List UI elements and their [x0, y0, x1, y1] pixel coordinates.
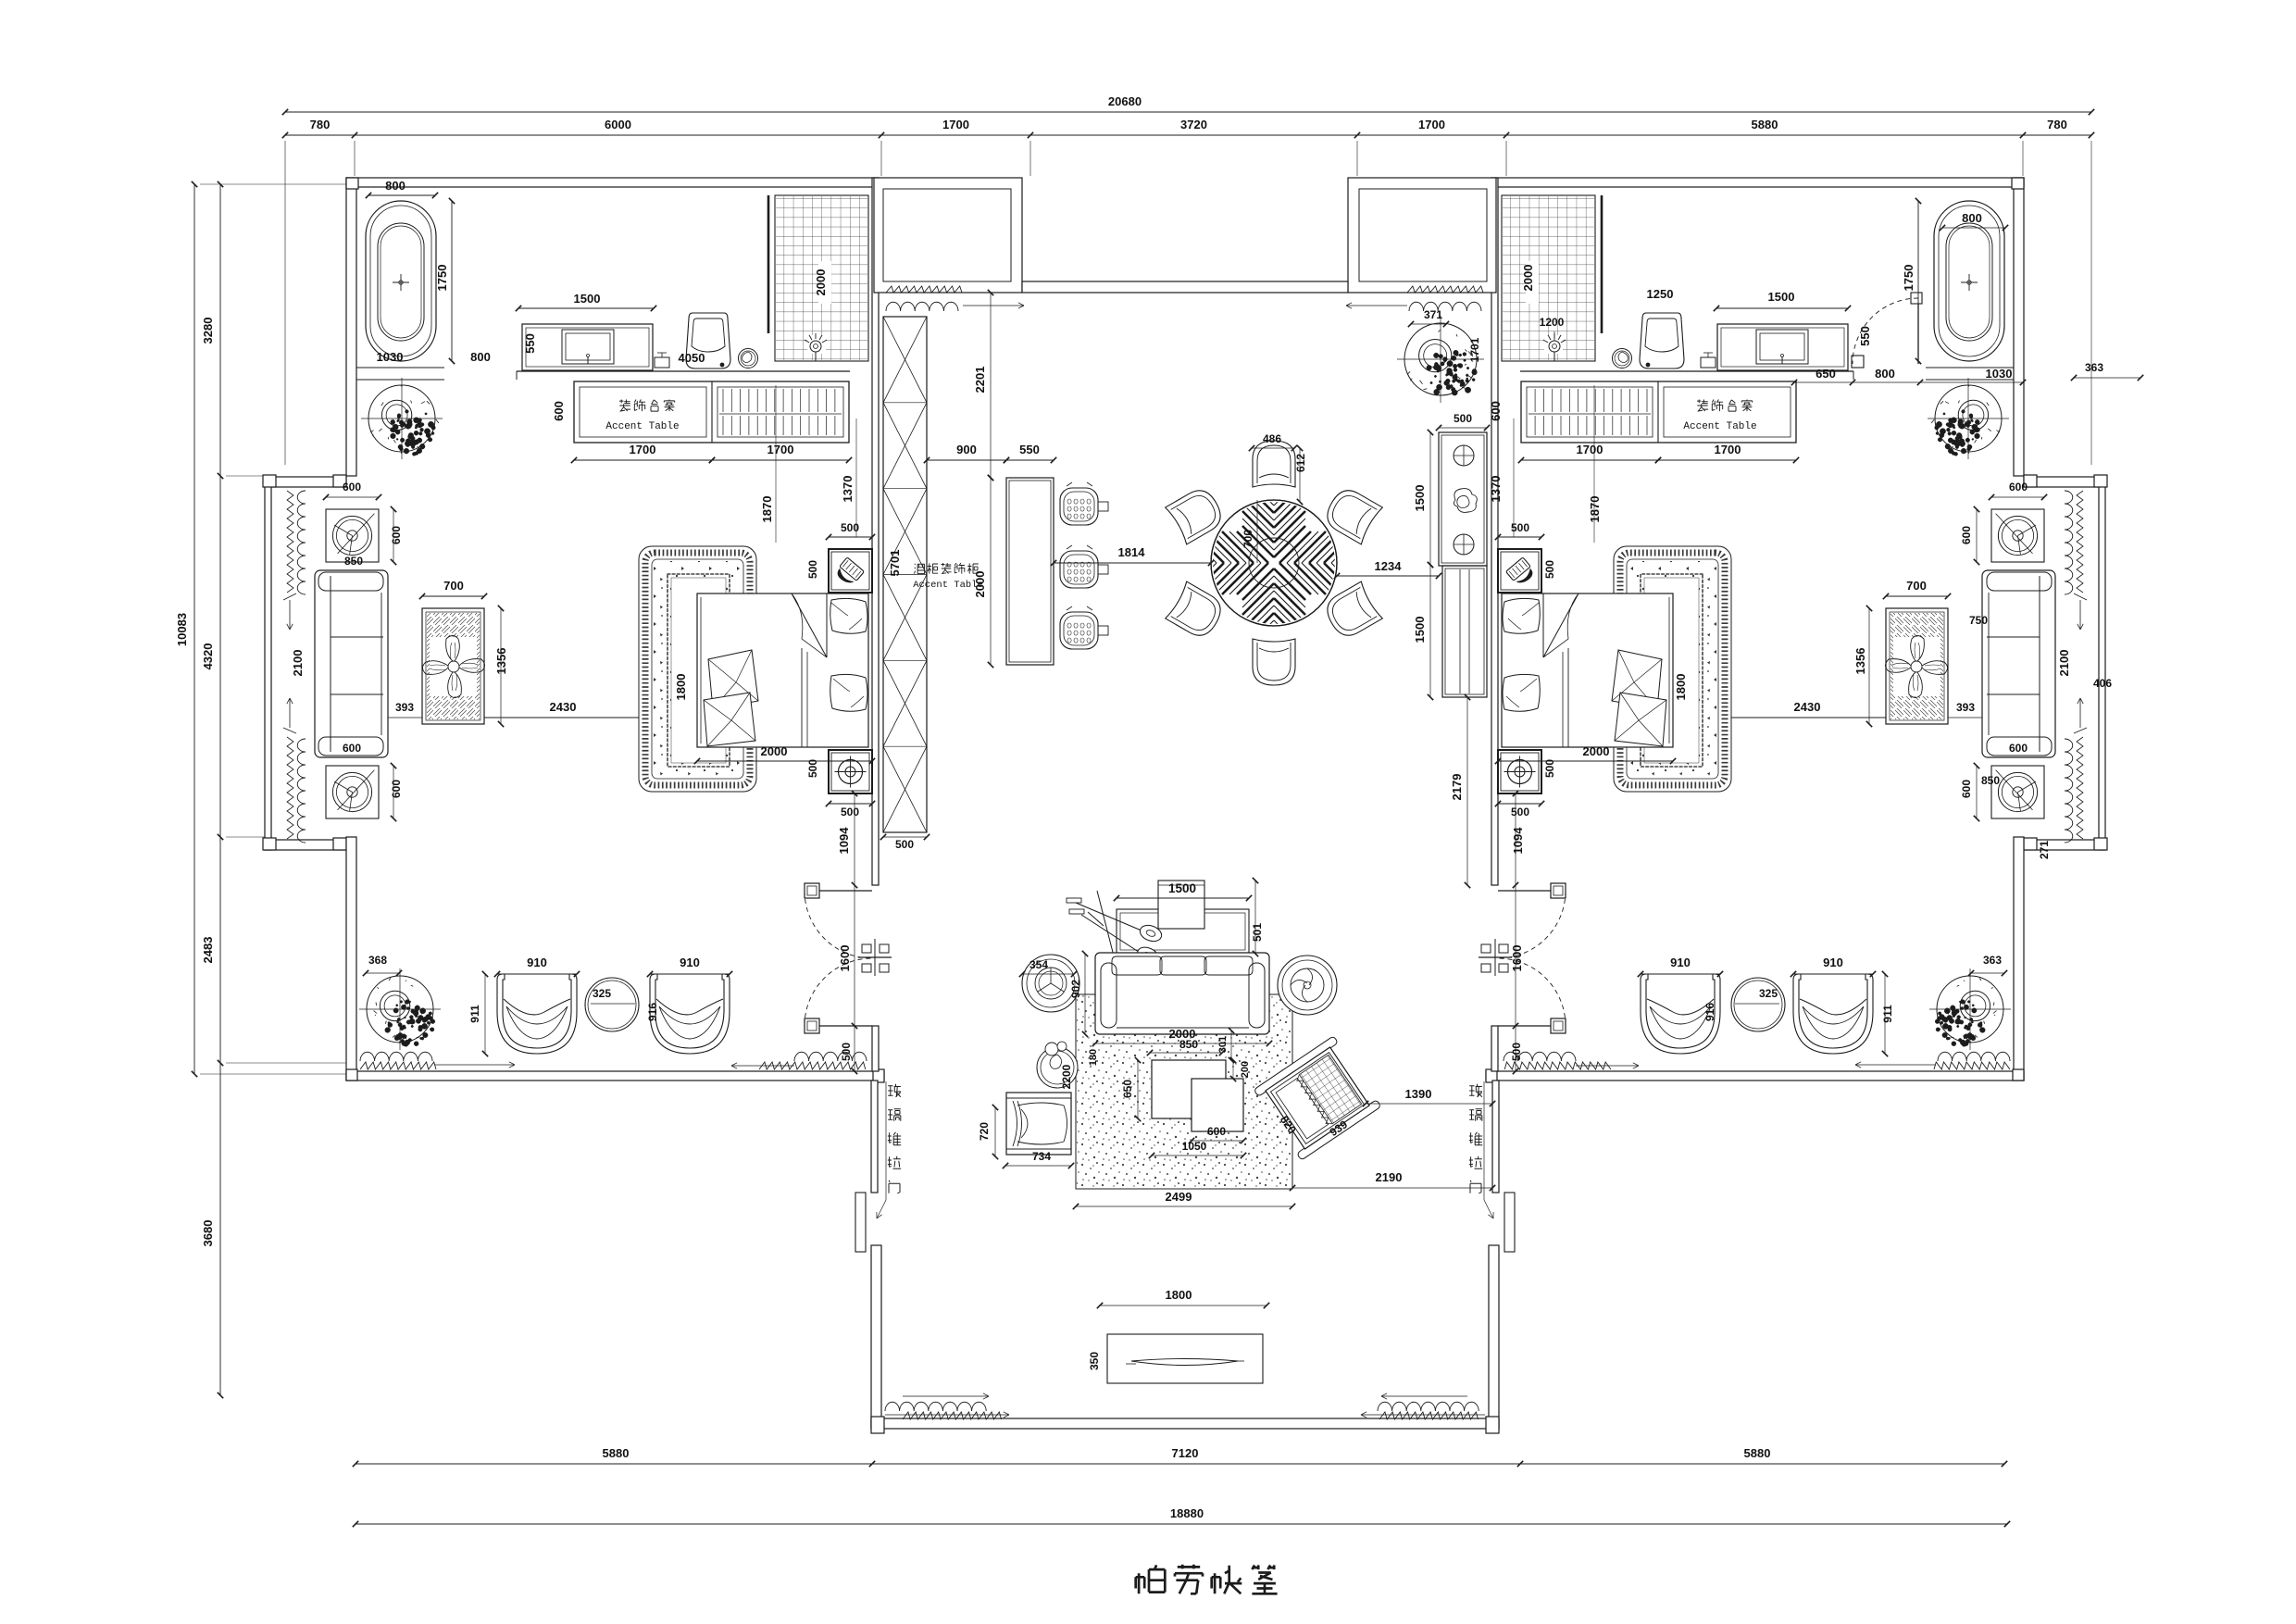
svg-text:600: 600: [1207, 1125, 1226, 1138]
svg-text:600: 600: [390, 780, 403, 798]
svg-text:1050: 1050: [1182, 1140, 1207, 1153]
svg-text:4050: 4050: [679, 351, 705, 365]
svg-text:393: 393: [395, 701, 414, 714]
svg-text:1094: 1094: [1511, 827, 1525, 855]
svg-text:180: 180: [1088, 1049, 1099, 1066]
svg-text:271: 271: [2038, 841, 2051, 859]
svg-text:2179: 2179: [1450, 774, 1464, 801]
svg-text:600: 600: [390, 526, 403, 544]
svg-text:301: 301: [1217, 1036, 1229, 1053]
svg-text:850: 850: [1981, 774, 2000, 787]
svg-text:1700: 1700: [942, 118, 969, 131]
svg-text:1030: 1030: [1986, 367, 2013, 381]
svg-text:2483: 2483: [201, 937, 215, 964]
svg-text:2000: 2000: [1521, 265, 1535, 292]
svg-text:1500: 1500: [1413, 617, 1427, 643]
svg-text:1700: 1700: [1715, 443, 1741, 456]
svg-text:550: 550: [523, 333, 537, 354]
svg-text:500: 500: [895, 838, 914, 851]
svg-text:1750: 1750: [435, 265, 449, 292]
svg-text:500: 500: [1543, 759, 1556, 778]
svg-text:916: 916: [646, 1003, 659, 1021]
svg-text:1500: 1500: [574, 292, 601, 306]
svg-text:5880: 5880: [603, 1446, 630, 1460]
svg-text:368: 368: [368, 954, 387, 967]
svg-text:600: 600: [2009, 742, 2028, 755]
svg-text:780: 780: [310, 118, 331, 131]
svg-text:910: 910: [1670, 956, 1691, 969]
svg-text:1700: 1700: [1577, 443, 1603, 456]
svg-text:2000: 2000: [1583, 744, 1610, 758]
svg-text:2190: 2190: [1376, 1170, 1403, 1184]
svg-text:800: 800: [1962, 211, 1982, 225]
svg-text:500: 500: [1454, 412, 1472, 425]
svg-text:850: 850: [1179, 1038, 1198, 1051]
svg-text:325: 325: [1759, 987, 1778, 1000]
svg-text:2000: 2000: [973, 571, 987, 598]
svg-text:600: 600: [343, 742, 361, 755]
svg-text:800: 800: [470, 350, 491, 364]
svg-text:1800: 1800: [1674, 674, 1688, 701]
svg-text:2201: 2201: [973, 367, 987, 394]
svg-text:910: 910: [680, 956, 700, 969]
svg-text:2000: 2000: [814, 269, 828, 296]
svg-text:600: 600: [1960, 780, 1973, 798]
svg-text:600: 600: [2009, 481, 2028, 493]
svg-text:5880: 5880: [1752, 118, 1778, 131]
svg-text:500: 500: [841, 521, 859, 534]
svg-text:7120: 7120: [1172, 1446, 1199, 1460]
svg-text:1250: 1250: [1647, 287, 1674, 301]
svg-text:700: 700: [1906, 579, 1927, 593]
svg-text:600: 600: [1960, 526, 1973, 544]
svg-text:1030: 1030: [377, 350, 404, 364]
svg-text:1600: 1600: [1510, 945, 1524, 972]
svg-text:363: 363: [2085, 361, 2103, 374]
svg-text:1701: 1701: [1468, 337, 1481, 362]
svg-text:1700: 1700: [767, 443, 794, 456]
svg-text:3280: 3280: [201, 318, 215, 344]
svg-text:500: 500: [806, 560, 819, 579]
svg-text:1750: 1750: [1902, 265, 1915, 292]
svg-text:1800: 1800: [674, 674, 688, 701]
svg-text:550: 550: [1858, 326, 1872, 346]
svg-text:18880: 18880: [1170, 1506, 1204, 1520]
svg-text:750: 750: [1969, 614, 1988, 627]
svg-text:500: 500: [806, 759, 819, 778]
svg-text:1234: 1234: [1375, 559, 1403, 573]
svg-text:486: 486: [1263, 432, 1281, 445]
svg-text:2499: 2499: [1166, 1190, 1192, 1204]
svg-text:Accent Table: Accent Table: [1683, 421, 1756, 432]
svg-text:5701: 5701: [888, 550, 902, 577]
svg-text:1370: 1370: [1489, 476, 1503, 503]
svg-text:2100: 2100: [291, 650, 305, 677]
svg-text:500: 500: [1511, 521, 1529, 534]
svg-text:910: 910: [1823, 956, 1843, 969]
svg-text:354: 354: [1029, 958, 1048, 971]
svg-text:363: 363: [1983, 954, 2002, 967]
svg-text:911: 911: [468, 1005, 481, 1023]
svg-text:1870: 1870: [760, 496, 774, 523]
svg-text:1870: 1870: [1588, 496, 1602, 523]
svg-text:371: 371: [1424, 308, 1442, 321]
svg-text:1700: 1700: [1418, 118, 1445, 131]
svg-text:612: 612: [1294, 454, 1307, 472]
svg-text:2200: 2200: [1060, 1064, 1073, 1089]
svg-text:700: 700: [1242, 530, 1254, 548]
svg-text:800: 800: [1875, 367, 1895, 381]
svg-text:600: 600: [343, 481, 361, 493]
svg-text:1500: 1500: [1768, 290, 1795, 304]
svg-text:650: 650: [1816, 367, 1836, 381]
svg-text:3720: 3720: [1180, 118, 1207, 131]
svg-text:1814: 1814: [1118, 545, 1146, 559]
svg-text:500: 500: [1510, 1043, 1523, 1061]
svg-text:2430: 2430: [1794, 700, 1821, 714]
svg-text:5880: 5880: [1744, 1446, 1771, 1460]
svg-text:6000: 6000: [605, 118, 631, 131]
svg-text:734: 734: [1032, 1150, 1051, 1163]
svg-text:910: 910: [527, 956, 547, 969]
svg-text:650: 650: [1121, 1080, 1134, 1098]
svg-text:1500: 1500: [1413, 485, 1427, 512]
svg-text:1500: 1500: [1168, 881, 1196, 895]
svg-text:1200: 1200: [1540, 316, 1565, 329]
svg-text:350: 350: [1088, 1352, 1101, 1370]
svg-text:10083: 10083: [175, 613, 189, 646]
svg-text:1800: 1800: [1166, 1288, 1192, 1302]
svg-text:325: 325: [593, 987, 611, 1000]
svg-text:550: 550: [1019, 443, 1040, 456]
svg-text:20680: 20680: [1108, 94, 1142, 108]
svg-text:1370: 1370: [841, 476, 855, 503]
svg-text:916: 916: [1703, 1003, 1716, 1021]
svg-text:1094: 1094: [837, 827, 851, 855]
svg-text:3680: 3680: [201, 1220, 215, 1247]
svg-text:4320: 4320: [201, 643, 215, 670]
svg-text:406: 406: [2093, 677, 2112, 690]
svg-text:1600: 1600: [838, 945, 852, 972]
svg-text:200: 200: [1240, 1061, 1251, 1078]
svg-text:902: 902: [1069, 980, 1082, 998]
svg-text:393: 393: [1956, 701, 1975, 714]
svg-text:1390: 1390: [1405, 1087, 1432, 1101]
svg-text:Accent Table: Accent Table: [605, 421, 679, 432]
svg-text:2000: 2000: [761, 744, 788, 758]
svg-text:500: 500: [1511, 806, 1529, 818]
svg-text:2100: 2100: [2057, 650, 2071, 677]
svg-text:700: 700: [443, 579, 464, 593]
svg-text:720: 720: [978, 1122, 991, 1141]
svg-text:500: 500: [840, 1043, 853, 1061]
svg-text:911: 911: [1881, 1005, 1894, 1023]
svg-text:780: 780: [2047, 118, 2067, 131]
svg-text:500: 500: [1543, 560, 1556, 579]
svg-text:500: 500: [841, 806, 859, 818]
svg-text:850: 850: [344, 555, 363, 568]
svg-text:600: 600: [1489, 401, 1503, 421]
svg-text:2430: 2430: [550, 700, 577, 714]
svg-text:501: 501: [1251, 923, 1264, 942]
svg-text:1700: 1700: [630, 443, 656, 456]
svg-text:1356: 1356: [1853, 648, 1867, 675]
svg-text:800: 800: [385, 179, 406, 193]
svg-text:900: 900: [956, 443, 977, 456]
svg-text:600: 600: [552, 401, 566, 421]
svg-text:1356: 1356: [494, 648, 508, 675]
